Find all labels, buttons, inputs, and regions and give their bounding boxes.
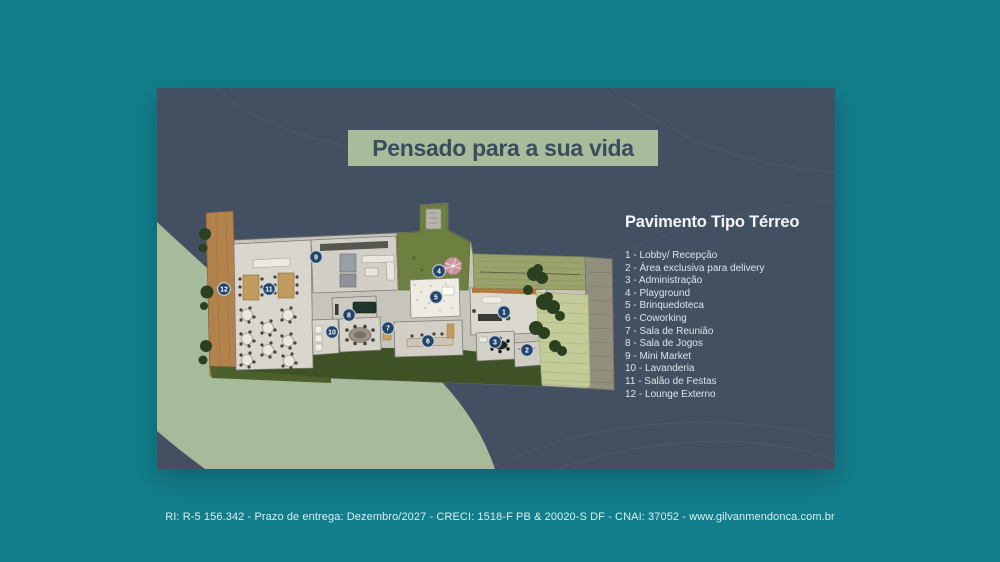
plan-badge-9: 9	[310, 251, 323, 264]
plan-badge-11: 11	[263, 283, 276, 296]
legend-item: 10 - Lavanderia	[625, 363, 831, 376]
legend-item: 5 - Brinquedoteca	[625, 300, 831, 313]
presentation-card: Pensado para a sua vida	[157, 88, 835, 469]
slide-title-banner: Pensado para a sua vida	[348, 130, 658, 166]
svg-text:12: 12	[220, 287, 228, 294]
svg-text:2: 2	[525, 348, 529, 355]
plan-badge-7: 7	[382, 322, 395, 335]
legend-item: 11 - Salão de Festas	[625, 376, 831, 389]
legend-item: 7 - Sala de Reunião	[625, 326, 831, 339]
svg-text:8: 8	[347, 313, 351, 320]
legend-item: 4 - Playground	[625, 288, 831, 301]
legend-item: 1 - Lobby/ Recepção	[625, 250, 831, 263]
room-salao-de-festas	[234, 240, 313, 370]
svg-text:4: 4	[437, 269, 441, 276]
pool-table	[353, 302, 376, 313]
svg-text:10: 10	[328, 330, 336, 337]
footer-disclaimer: RI: R-5 156.342 - Prazo de entrega: Deze…	[0, 511, 1000, 523]
plan-badge-3: 3	[489, 336, 502, 349]
legend-item: 2 - Área exclusiva para delivery	[625, 263, 831, 276]
svg-text:3: 3	[493, 340, 497, 347]
floor-plan: 1 2 3 4 5 6 7 8 9 10 11 12	[190, 200, 650, 405]
plan-badge-5: 5	[430, 291, 443, 304]
plan-badge-12: 12	[218, 283, 231, 296]
svg-text:7: 7	[386, 326, 390, 333]
room-mini-market	[311, 236, 398, 293]
legend-item: 9 - Mini Market	[625, 351, 831, 364]
legend-item: 6 - Coworking	[625, 313, 831, 326]
legend-item: 3 - Administração	[625, 275, 831, 288]
svg-text:1: 1	[502, 310, 506, 317]
legend-item: 8 - Sala de Jogos	[625, 338, 831, 351]
plan-badge-4: 4	[433, 265, 446, 278]
slide-background: Pensado para a sua vida	[0, 0, 1000, 562]
plan-badge-2: 2	[521, 344, 534, 357]
plan-heading: Pavimento Tipo Térreo	[625, 212, 831, 232]
plan-badge-6: 6	[422, 335, 435, 348]
plan-badge-1: 1	[498, 306, 511, 319]
deck-lounge-externo	[199, 211, 239, 376]
legend-item: 12 - Lounge Externo	[625, 389, 831, 402]
area-playground	[397, 204, 470, 290]
svg-text:5: 5	[434, 295, 438, 302]
plan-legend: 1 - Lobby/ Recepção 2 - Área exclusiva p…	[625, 250, 831, 401]
svg-text:6: 6	[426, 339, 430, 346]
plan-badge-8: 8	[343, 309, 356, 322]
slide-title: Pensado para a sua vida	[372, 135, 634, 162]
svg-text:11: 11	[265, 287, 273, 294]
plan-legend-panel: Pavimento Tipo Térreo 1 - Lobby/ Recepçã…	[625, 212, 831, 401]
plan-badge-10: 10	[326, 326, 339, 339]
svg-text:9: 9	[314, 255, 318, 262]
